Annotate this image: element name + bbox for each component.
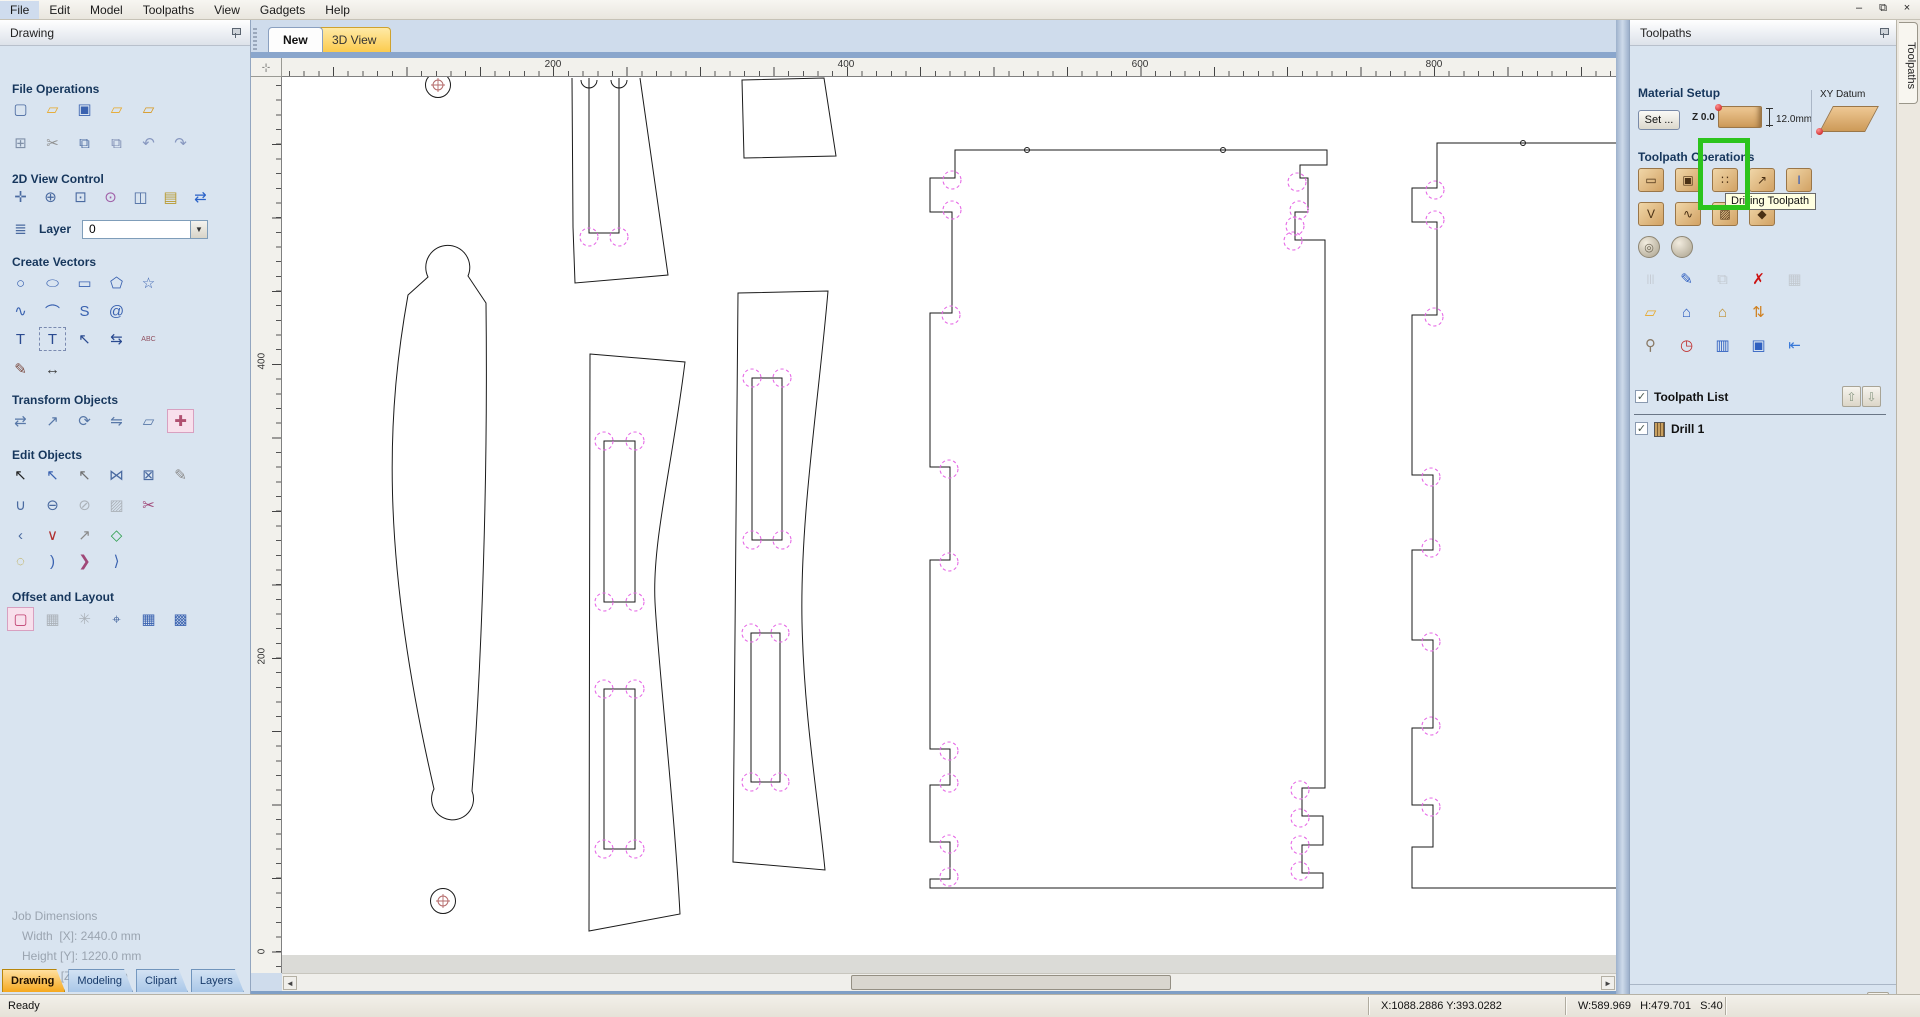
file-operations-row-1: ▢▱▣▱▱ <box>8 98 161 120</box>
restore-button[interactable]: ⧉ <box>1874 1 1892 16</box>
draw-polyline-icon[interactable]: ∿ <box>8 300 33 322</box>
drill-preview-circle[interactable] <box>1422 539 1440 557</box>
open-file-icon[interactable]: ▱ <box>40 98 65 120</box>
toolpath-list-heading: Toolpath List <box>1654 390 1728 404</box>
inlay-toolpath-icon[interactable]: I <box>1786 168 1812 192</box>
window-controls: – ⧉ × <box>1850 1 1916 16</box>
dock-toolbar-icon[interactable]: ⇤ <box>1782 334 1807 356</box>
scrollbar-thumb[interactable] <box>851 975 1171 990</box>
nest-parts-icon[interactable]: ⌖ <box>104 608 129 630</box>
draw-arc-icon[interactable]: ⌒ <box>40 300 65 322</box>
mirror-icon[interactable]: ⇋ <box>104 410 129 432</box>
pan-view-icon[interactable]: ✛ <box>8 186 33 208</box>
weld-vectors-icon[interactable]: ∪ <box>8 494 33 516</box>
estimate-machining-time-icon[interactable]: ◷ <box>1674 334 1699 356</box>
save-file-icon[interactable]: ▣ <box>72 98 97 120</box>
edit-objects-heading: Edit Objects <box>12 448 82 462</box>
import-vectors-icon[interactable]: ▱ <box>104 98 129 120</box>
drill-preview-circle[interactable] <box>940 460 958 478</box>
ruler-label: 200 <box>545 59 562 70</box>
panel-tab-bar: Drawing Modeling Clipart Layers <box>2 969 244 992</box>
part-slat-1-slot-1[interactable] <box>604 441 635 602</box>
fit-arc-1-icon[interactable]: ) <box>40 550 65 572</box>
highlight-annotation <box>1698 138 1750 210</box>
edit-objects-row-1: ↖↖↖⋈⊠✎ <box>8 464 193 486</box>
layers-row-icons: ≣ <box>8 218 33 240</box>
tab-3d-view[interactable]: 3D View <box>317 27 391 52</box>
panel-splitter[interactable] <box>1616 20 1629 994</box>
ruler-label: 200 <box>257 651 268 665</box>
layer-dropdown-value: 0 <box>89 222 96 236</box>
xy-datum-icon <box>1819 106 1879 132</box>
tool-list-icon[interactable]: ||| <box>1638 268 1663 290</box>
close-button[interactable]: × <box>1898 1 1916 16</box>
toolpath-list-checkbox[interactable]: ✓ <box>1635 390 1648 403</box>
load-toolpath-icon[interactable]: ▱ <box>1638 301 1663 323</box>
thickness-icon <box>1766 108 1773 126</box>
ruler-label: 400 <box>257 356 268 370</box>
freehand-sketch-icon[interactable]: ✎ <box>8 358 33 380</box>
draw-rectangle-icon[interactable]: ▭ <box>72 272 97 294</box>
drill-preview-circle[interactable] <box>940 742 958 760</box>
layer-dropdown[interactable]: 0 ▼ <box>82 220 208 239</box>
drill-preview-circle[interactable] <box>1422 633 1440 651</box>
footer-separator <box>1630 984 1896 985</box>
scroll-left-icon[interactable]: ◄ <box>283 976 297 990</box>
drill-preview-circle[interactable] <box>1422 468 1440 486</box>
tab-drawing[interactable]: Drawing <box>2 969 65 992</box>
save-toolpath-template-icon[interactable]: ⌂ <box>1674 301 1699 323</box>
part-side-panel-2[interactable] <box>1412 143 1616 888</box>
transform-objects-heading: Transform Objects <box>12 393 118 407</box>
toolpaths-dock-tab[interactable]: Toolpaths <box>1899 22 1918 104</box>
paste-icon[interactable]: ⧉ <box>104 132 129 154</box>
draw-spiral-icon[interactable]: @ <box>104 300 129 322</box>
create-vectors-row-1: ○⬭▭⬠☆ <box>8 272 161 294</box>
layer-label: Layer <box>39 222 71 236</box>
offset-layout-heading: Offset and Layout <box>12 590 114 604</box>
part-slat-2-slot-2[interactable] <box>751 633 780 782</box>
block-copy-icon[interactable]: ▦ <box>136 608 161 630</box>
draw-ellipse-icon[interactable]: ⬭ <box>40 272 65 294</box>
draw-text-box-icon[interactable]: T <box>40 328 65 350</box>
move-down-button[interactable]: ⇩ <box>1862 386 1881 407</box>
align-objects-icon[interactable]: ✚ <box>168 410 193 432</box>
part-slat-1[interactable] <box>589 354 685 931</box>
drill-preview-circle[interactable] <box>1426 211 1444 229</box>
save-toolpath-icon[interactable]: ▣ <box>1746 334 1771 356</box>
new-file-icon[interactable]: ▢ <box>8 98 33 120</box>
toolpaths-panel: Toolpaths Material Setup Set ... Z 0.0 1… <box>1629 20 1896 994</box>
part-slat-1-slot-2[interactable] <box>604 689 635 849</box>
menu-file[interactable]: File <box>0 1 39 19</box>
drill-preview-circle[interactable] <box>940 868 958 886</box>
vertical-ruler: 400 200 0 <box>251 77 282 973</box>
draw-polygon-icon[interactable]: ⬠ <box>104 272 129 294</box>
zoom-fit-icon[interactable]: ◫ <box>128 186 153 208</box>
drill-preview-circle[interactable] <box>942 306 960 324</box>
tab-layers[interactable]: Layers <box>191 969 244 992</box>
canvas-margin <box>282 955 1616 973</box>
material-setup-heading: Material Setup <box>1638 86 1720 100</box>
ruler-label: 0 <box>257 945 268 959</box>
ruler-corner: -¦- <box>251 58 282 77</box>
drill-toolpath-icon <box>1654 422 1665 437</box>
tab-modeling[interactable]: Modeling <box>68 969 133 992</box>
fit-arc-3-icon[interactable]: ⟩ <box>104 550 129 572</box>
zoom-box-icon[interactable]: ⊡ <box>68 186 93 208</box>
drill-preview-circle[interactable] <box>1288 173 1306 191</box>
drill-preview-circle[interactable] <box>1425 308 1443 326</box>
cursor-position: X:1088.2886 Y:393.0282 <box>1368 997 1565 1015</box>
create-vectors-row-4: ✎↔ <box>8 358 65 380</box>
recalculate-toolpaths-icon[interactable]: ▦ <box>1782 268 1807 290</box>
measure-tool-icon[interactable]: ✎ <box>168 464 193 486</box>
menu-edit[interactable]: Edit <box>39 1 80 19</box>
file-operations-row-2: ⊞✂⧉⧉↶↷ <box>8 132 193 154</box>
vcarve-toolpath-icon[interactable]: V <box>1638 202 1664 226</box>
cut-icon[interactable]: ✂ <box>40 132 65 154</box>
fit-curves-icon[interactable]: ◇ <box>104 524 129 546</box>
menu-help[interactable]: Help <box>315 1 360 19</box>
ruler-label: 800 <box>1426 59 1443 70</box>
drawing-canvas[interactable] <box>282 77 1616 955</box>
toolpath-item-drill1[interactable]: Drill 1 <box>1671 422 1704 436</box>
offset-layout-row: ▢▦✳⌖▦▩ <box>8 608 193 630</box>
drill-preview-circle[interactable] <box>1291 862 1309 880</box>
pin-icon[interactable] <box>232 28 241 37</box>
material-thickness: 12.0mm <box>1776 114 1812 125</box>
datum-marker-cross[interactable] <box>431 78 445 92</box>
dock-strip: Toolpaths <box>1896 20 1920 994</box>
xy-datum-dot <box>1816 128 1823 135</box>
status-spacer <box>1725 997 1920 1015</box>
circular-array-icon[interactable]: ✳ <box>72 608 97 630</box>
draw-circle-icon[interactable]: ○ <box>8 272 33 294</box>
part-spreader-slot[interactable] <box>589 78 619 233</box>
switch-view-icon[interactable]: ⇄ <box>188 186 213 208</box>
view-control-row: ✛⊕⊡⊙◫▤⇄ <box>8 186 213 208</box>
drill-preview-circle[interactable] <box>1426 181 1444 199</box>
tab-clipart[interactable]: Clipart <box>136 969 188 992</box>
part-wedge[interactable] <box>742 78 836 158</box>
menu-toolpaths[interactable]: Toolpaths <box>133 1 204 19</box>
show-nodes-icon[interactable]: ◌ <box>8 550 33 572</box>
ruler-label: 400 <box>838 59 855 70</box>
join-vectors-icon[interactable]: ⋈ <box>104 464 129 486</box>
fillet-tool-icon[interactable]: ‹ <box>8 524 33 546</box>
duplicate-toolpath-icon[interactable]: ⧉ <box>1710 268 1735 290</box>
close-vector-icon[interactable]: ⊠ <box>136 464 161 486</box>
drill-preview-circle[interactable] <box>1284 232 1302 250</box>
scroll-right-icon[interactable]: ► <box>1601 976 1615 990</box>
offset-vectors-icon[interactable]: ▢ <box>8 608 33 630</box>
insert-node-icon[interactable]: ∨ <box>40 524 65 546</box>
toolpath-ops-row-5: ▱⌂⌂⇅ <box>1638 301 1771 323</box>
drill-preview-circle[interactable] <box>943 171 961 189</box>
application-window: File Edit Model Toolpaths View Gadgets H… <box>0 0 1920 1017</box>
menu-view[interactable]: View <box>204 1 250 19</box>
menu-bar: File Edit Model Toolpaths View Gadgets H… <box>0 0 1920 20</box>
job-setup-icon[interactable]: ⊞ <box>8 132 33 154</box>
subtract-vectors-icon[interactable]: ⊖ <box>40 494 65 516</box>
fit-arc-2-icon[interactable]: ❯ <box>72 550 97 572</box>
drill-preview-circle[interactable] <box>1422 798 1440 816</box>
part-slat-2-slot-1[interactable] <box>752 378 782 540</box>
draw-star-icon[interactable]: ☆ <box>136 272 161 294</box>
trim-vectors-icon[interactable]: ⊘ <box>72 494 97 516</box>
menu-model[interactable]: Model <box>80 1 133 19</box>
select-tool-icon[interactable]: ↖ <box>8 464 33 486</box>
finish-3d-toolpath-icon[interactable] <box>1671 236 1693 258</box>
rough-3d-toolpath-icon[interactable]: ◎ <box>1638 236 1660 258</box>
drill-preview-circle[interactable] <box>940 553 958 571</box>
draw-text-icon[interactable]: T <box>8 328 33 350</box>
profile-toolpath-icon[interactable]: ▭ <box>1638 168 1664 192</box>
file-operations-heading: File Operations <box>12 82 99 96</box>
horizontal-scrollbar[interactable]: ◄ ► <box>282 973 1616 991</box>
drill-preview-circle[interactable] <box>1291 781 1309 799</box>
draw-curve-icon[interactable]: S <box>72 300 97 322</box>
job-height: Height [Y]: 1220.0 mm <box>12 946 141 966</box>
job-dimensions-title: Job Dimensions <box>12 906 141 926</box>
toolpath-summary-icon[interactable]: ▥ <box>1710 334 1735 356</box>
create-vectors-heading: Create Vectors <box>12 255 96 269</box>
material-block-icon <box>1718 106 1762 128</box>
zoom-extents-icon[interactable]: ▤ <box>158 186 183 208</box>
layers-icon[interactable]: ≣ <box>8 218 33 240</box>
chevron-down-icon[interactable]: ▼ <box>190 221 207 238</box>
part-side-panel[interactable] <box>930 150 1327 888</box>
ruler-label: 600 <box>1132 59 1149 70</box>
move-nodes-icon[interactable]: ↖ <box>72 464 97 486</box>
material-z-label: Z 0.0 <box>1692 112 1715 123</box>
job-width: Width [X]: 2440.0 mm <box>12 926 141 946</box>
drill-preview-circle[interactable] <box>940 774 958 792</box>
pin-icon[interactable] <box>1880 28 1889 37</box>
toolbar-grip <box>253 28 257 50</box>
material-set-button[interactable]: Set ... <box>1638 110 1680 130</box>
layer-row: ≣ Layer <box>8 218 71 240</box>
dimension-icon[interactable]: ↔ <box>40 358 65 380</box>
save-all-templates-icon[interactable]: ⌂ <box>1710 301 1735 323</box>
minimize-button[interactable]: – <box>1850 1 1868 16</box>
rotate-icon[interactable]: ⟳ <box>72 410 97 432</box>
tool-database-icon[interactable]: ⚲ <box>1638 334 1663 356</box>
tab-new-view[interactable]: New <box>268 27 323 52</box>
distort-icon[interactable]: ▱ <box>136 410 161 432</box>
toolpaths-panel-body: Material Setup Set ... Z 0.0 12.0mm XY D… <box>1630 46 1896 994</box>
zoom-interactive-icon[interactable]: ⊕ <box>38 186 63 208</box>
z-datum-dot <box>1715 104 1722 111</box>
part-spreader-outline[interactable] <box>572 78 668 283</box>
toolpath-ops-row-3: ◎ <box>1638 236 1693 258</box>
edit-objects-row-3: ‹∨↗◇ <box>8 524 129 546</box>
redo-icon[interactable]: ↷ <box>168 132 193 154</box>
vector-drawing[interactable] <box>282 77 1616 955</box>
edit-objects-row-2: ∪⊖⊘▨✂ <box>8 494 161 516</box>
material-divider <box>1811 90 1812 138</box>
drill1-checkbox[interactable]: ✓ <box>1635 422 1648 435</box>
set-size-icon[interactable]: ↗ <box>40 410 65 432</box>
slice-vectors-icon[interactable]: ▨ <box>104 494 129 516</box>
quick-engrave-toolpath-icon[interactable]: ↗ <box>1749 168 1775 192</box>
edit-text-icon[interactable]: ↖ <box>72 328 97 350</box>
drill-preview-circle[interactable] <box>940 835 958 853</box>
undo-icon[interactable]: ↶ <box>136 132 161 154</box>
copy-icon[interactable]: ⧉ <box>72 132 97 154</box>
export-vectors-icon[interactable]: ▱ <box>136 98 161 120</box>
node-edit-icon[interactable]: ↖ <box>40 464 65 486</box>
toolpath-ops-row-4: |||✎⧉✗▦ <box>1638 268 1807 290</box>
horizontal-ruler: 200 400 600 800 <box>282 58 1616 77</box>
view-control-heading: 2D View Control <box>12 172 104 186</box>
datum-marker-cross[interactable] <box>436 894 450 908</box>
drawing-panel-body: File Operations ▢▱▣▱▱ ⊞✂⧉⧉↶↷ 2D View Con… <box>0 46 250 994</box>
xy-datum-label: XY Datum <box>1820 89 1865 100</box>
extend-vector-icon[interactable]: ↗ <box>72 524 97 546</box>
create-vectors-row-3: TT↖⇆ABC <box>8 328 161 350</box>
vector-scissors-icon[interactable]: ✂ <box>136 494 161 516</box>
part-curved-leg[interactable] <box>392 245 486 820</box>
status-bar: Ready X:1088.2886 Y:393.0282 W:589.969 H… <box>0 994 1920 1017</box>
drill-preview-circle[interactable] <box>1290 201 1308 219</box>
status-ready: Ready <box>8 1000 40 1012</box>
nesting-layout-icon[interactable]: ▩ <box>168 608 193 630</box>
create-vectors-row-2: ∿⌒S@ <box>8 300 129 322</box>
menu-gadgets[interactable]: Gadgets <box>250 1 315 19</box>
drawing-panel-title: Drawing <box>0 20 250 46</box>
toolpath-ops-row-6: ⚲◷▥▣⇤ <box>1638 334 1807 356</box>
text-on-arc-icon[interactable]: ABC <box>136 328 161 350</box>
merge-toolpaths-icon[interactable]: ⇅ <box>1746 301 1771 323</box>
text-spacing-icon[interactable]: ⇆ <box>104 328 129 350</box>
drill-preview-circle[interactable] <box>1422 717 1440 735</box>
drawing-panel: Drawing File Operations ▢▱▣▱▱ ⊞✂⧉⧉↶↷ 2D … <box>0 20 251 994</box>
drill-preview-circle[interactable] <box>1291 809 1309 827</box>
toolpaths-panel-title: Toolpaths <box>1630 20 1896 46</box>
list-separator <box>1634 414 1886 415</box>
selection-size: W:589.969 H:479.701 S:40 <box>1565 997 1725 1015</box>
transform-objects-row: ⇄↗⟳⇋▱✚ <box>8 410 193 432</box>
edit-objects-row-4: ◌)❯⟩ <box>8 550 129 572</box>
canvas-column: New 3D View -¦- 200 400 600 800 400 200 … <box>251 20 1629 994</box>
move-selection-icon[interactable]: ⇄ <box>8 410 33 432</box>
delete-toolpath-icon[interactable]: ✗ <box>1746 268 1771 290</box>
array-copy-icon[interactable]: ▦ <box>40 608 65 630</box>
move-up-button[interactable]: ⇧ <box>1842 386 1861 407</box>
zoom-selected-icon[interactable]: ⊙ <box>98 186 123 208</box>
edit-toolpath-icon[interactable]: ✎ <box>1674 268 1699 290</box>
